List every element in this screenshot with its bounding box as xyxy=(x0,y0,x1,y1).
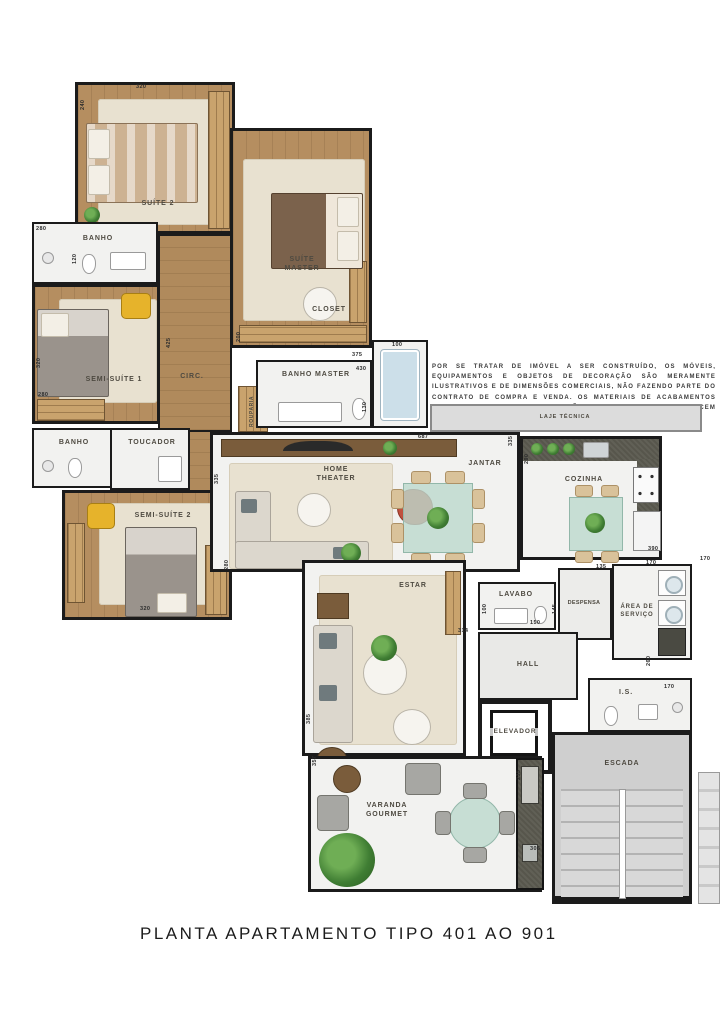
floor-plan-page: SUÍTE 2 SUÍTE MASTER CLOSET BANHO SEMI-S… xyxy=(0,0,724,1024)
dimension-label: 235 xyxy=(516,770,522,780)
dimension-label: 320 xyxy=(140,606,150,612)
plan-title: PLANTA APARTAMENTO TIPO 401 AO 901 xyxy=(140,924,530,944)
room-label: LAJE TÉCNICA xyxy=(432,414,698,421)
dining-chair xyxy=(411,471,431,484)
room-label: BANHO xyxy=(68,234,128,243)
room-label: HALL xyxy=(498,660,558,669)
dimension-label: 357 xyxy=(312,756,318,766)
shower-head-icon xyxy=(672,702,683,713)
room-label: CIRC. xyxy=(172,372,212,381)
side-table xyxy=(333,765,361,793)
toilet xyxy=(82,254,96,274)
dimension-label: 135 xyxy=(596,564,606,570)
closet-chair xyxy=(303,287,337,321)
room-label: ESCADA xyxy=(585,759,659,768)
dimension-label: 100 xyxy=(482,604,488,614)
bed-pillow xyxy=(157,593,187,613)
sink xyxy=(638,704,658,720)
patio-chair xyxy=(463,783,487,799)
room-label: TOUCADOR xyxy=(116,438,188,447)
dining-chair xyxy=(391,489,404,509)
table-centerpiece xyxy=(585,513,605,533)
room-circulacao: CIRC. xyxy=(158,234,232,432)
plant xyxy=(319,833,375,887)
dimension-label: 335 xyxy=(214,474,220,484)
dimension-label: 240 xyxy=(80,100,86,110)
dimension-label: 170 xyxy=(646,560,656,566)
room-label: SUÍTE MASTER xyxy=(275,255,329,273)
cushion xyxy=(319,685,337,701)
dimension-label: 390 xyxy=(648,546,658,552)
dimension-label: 335 xyxy=(508,436,514,446)
washing-machine xyxy=(658,600,686,626)
room-toucador: TOUCADOR xyxy=(110,428,190,490)
room-is: I.S. xyxy=(588,678,692,732)
room-banho-suite-2: BANHO xyxy=(32,222,158,284)
wardrobe xyxy=(208,91,230,229)
dimension-label: 320 xyxy=(36,358,42,368)
room-escada: ESCADA xyxy=(552,732,692,904)
wardrobe xyxy=(239,325,367,343)
room-suite-master: SUÍTE MASTER CLOSET xyxy=(230,128,372,348)
dimension-label: 170 xyxy=(664,684,674,690)
plant xyxy=(547,443,559,455)
dimension-label: 306 xyxy=(530,846,540,852)
plant xyxy=(371,635,397,661)
desk-chair xyxy=(87,503,115,529)
dimension-label: 100 xyxy=(392,342,402,348)
dimension-label: 120 xyxy=(72,254,78,264)
wardrobe xyxy=(67,523,85,603)
room-label: I.S. xyxy=(606,688,646,697)
room-banho-master: BANHO MASTER xyxy=(256,360,372,428)
bed-pillow xyxy=(88,165,110,195)
room-area-servico: ÁREA DE SERVIÇO xyxy=(612,564,692,660)
dimension-label: 260 xyxy=(646,656,652,666)
dimension-label: 280 xyxy=(38,392,48,398)
dimension-label: 145 xyxy=(552,604,558,614)
dining-chair xyxy=(472,523,485,543)
room-label: LAVABO xyxy=(484,590,548,599)
fridge xyxy=(633,511,661,551)
room-cozinha: COZINHA xyxy=(520,436,662,560)
coffee-table xyxy=(297,493,331,527)
side-table xyxy=(317,593,349,619)
kitchen-chair xyxy=(601,485,619,497)
room-varanda-gourmet: VARANDA GOURMET xyxy=(308,756,542,892)
room-label: BANHO MASTER xyxy=(272,370,360,379)
patio-chair xyxy=(435,811,451,835)
table-centerpiece xyxy=(427,507,449,529)
room-label: ESTAR xyxy=(383,581,443,590)
cushion xyxy=(319,633,337,649)
bathtub xyxy=(381,350,419,420)
bed-pillow xyxy=(41,313,69,337)
dimension-label: 687 xyxy=(418,434,428,440)
shower-head-icon xyxy=(42,460,54,472)
dimension-label: 130 xyxy=(362,402,368,412)
plant xyxy=(563,443,575,455)
plant xyxy=(84,207,100,223)
room-label: ELEVADOR xyxy=(484,728,546,736)
kitchen-chair xyxy=(575,551,593,563)
room-label: CLOSET xyxy=(299,305,359,314)
sink xyxy=(494,608,528,624)
desk-chair xyxy=(121,293,151,319)
patio-chair xyxy=(499,811,515,835)
washing-machine xyxy=(658,570,686,596)
room-suite-2: SUÍTE 2 xyxy=(75,82,235,234)
room-despensa: DESPENSA xyxy=(558,568,612,640)
laundry-counter xyxy=(658,628,686,656)
kitchen-chair xyxy=(575,485,593,497)
dimension-label: 150 xyxy=(530,620,540,626)
room-banheira xyxy=(372,340,428,428)
cushion xyxy=(241,499,257,513)
dimension-label: 280 xyxy=(36,226,46,232)
bed-pillow xyxy=(337,197,359,227)
room-lavabo: LAVABO xyxy=(478,582,556,630)
dimension-label: 290 xyxy=(524,454,530,464)
wardrobe xyxy=(37,399,105,421)
dimension-label: 385 xyxy=(306,714,312,724)
dimension-label: 430 xyxy=(356,366,366,372)
dimension-label: 425 xyxy=(166,338,172,348)
dimension-label: 314 xyxy=(458,628,468,634)
plant xyxy=(531,443,543,455)
room-banho-2: BANHO xyxy=(32,428,112,488)
dimension-label: 375 xyxy=(352,352,362,358)
dimension-label: 170 xyxy=(700,556,710,562)
bed-pillow xyxy=(88,129,110,159)
grill xyxy=(521,766,539,804)
neighbor-slab xyxy=(698,772,720,904)
deck-bench xyxy=(445,571,461,635)
dining-chair xyxy=(391,523,404,543)
plant xyxy=(383,441,397,455)
room-laje-tecnica: LAJE TÉCNICA xyxy=(430,404,702,432)
round-table xyxy=(449,797,501,849)
shower-head-icon xyxy=(42,252,54,264)
sink xyxy=(110,252,146,270)
room-label: ÁREA DE SERVIÇO xyxy=(616,604,658,620)
room-label: SEMI-SUÍTE 2 xyxy=(113,511,213,520)
room-estar: ESTAR xyxy=(302,560,466,756)
lounge-chair xyxy=(317,795,349,831)
double-sink xyxy=(278,402,342,422)
room-label: SUÍTE 2 xyxy=(108,199,208,208)
room-label: ROUPARIA xyxy=(249,396,255,427)
dimension-label: 280 xyxy=(224,560,230,570)
room-label: BANHO xyxy=(44,438,104,447)
kitchen-chair xyxy=(601,551,619,563)
room-label: HOME THEATER xyxy=(305,465,367,483)
room-semi-suite-1: SEMI-SUÍTE 1 xyxy=(32,284,160,424)
sink xyxy=(158,456,182,482)
room-label: VARANDA GOURMET xyxy=(353,801,421,819)
dining-chair xyxy=(445,471,465,484)
armchair xyxy=(393,709,431,745)
room-semi-suite-2: SEMI-SUÍTE 2 xyxy=(62,490,232,620)
toilet xyxy=(604,706,618,726)
kitchen-sink xyxy=(583,442,609,458)
lounge-chair xyxy=(405,763,441,795)
toilet xyxy=(68,458,82,478)
bed-pillow xyxy=(337,231,359,261)
floor-plan: SUÍTE 2 SUÍTE MASTER CLOSET BANHO SEMI-S… xyxy=(0,0,724,1024)
stove xyxy=(633,467,659,503)
patio-chair xyxy=(463,847,487,863)
dimension-label: 200 xyxy=(236,332,242,342)
room-label: COZINHA xyxy=(549,475,619,484)
tv-icon xyxy=(283,441,353,451)
dimension-label: 320 xyxy=(136,84,146,90)
room-label: DESPENSA xyxy=(560,600,608,607)
stairs-treads xyxy=(561,789,683,897)
dining-chair xyxy=(472,489,485,509)
room-hall: HALL xyxy=(478,632,578,700)
stairs-divider xyxy=(619,789,626,899)
room-label: JANTAR xyxy=(455,459,515,468)
room-living: HOME THEATER JANTAR xyxy=(210,432,520,572)
room-label: SEMI-SUÍTE 1 xyxy=(69,375,159,384)
